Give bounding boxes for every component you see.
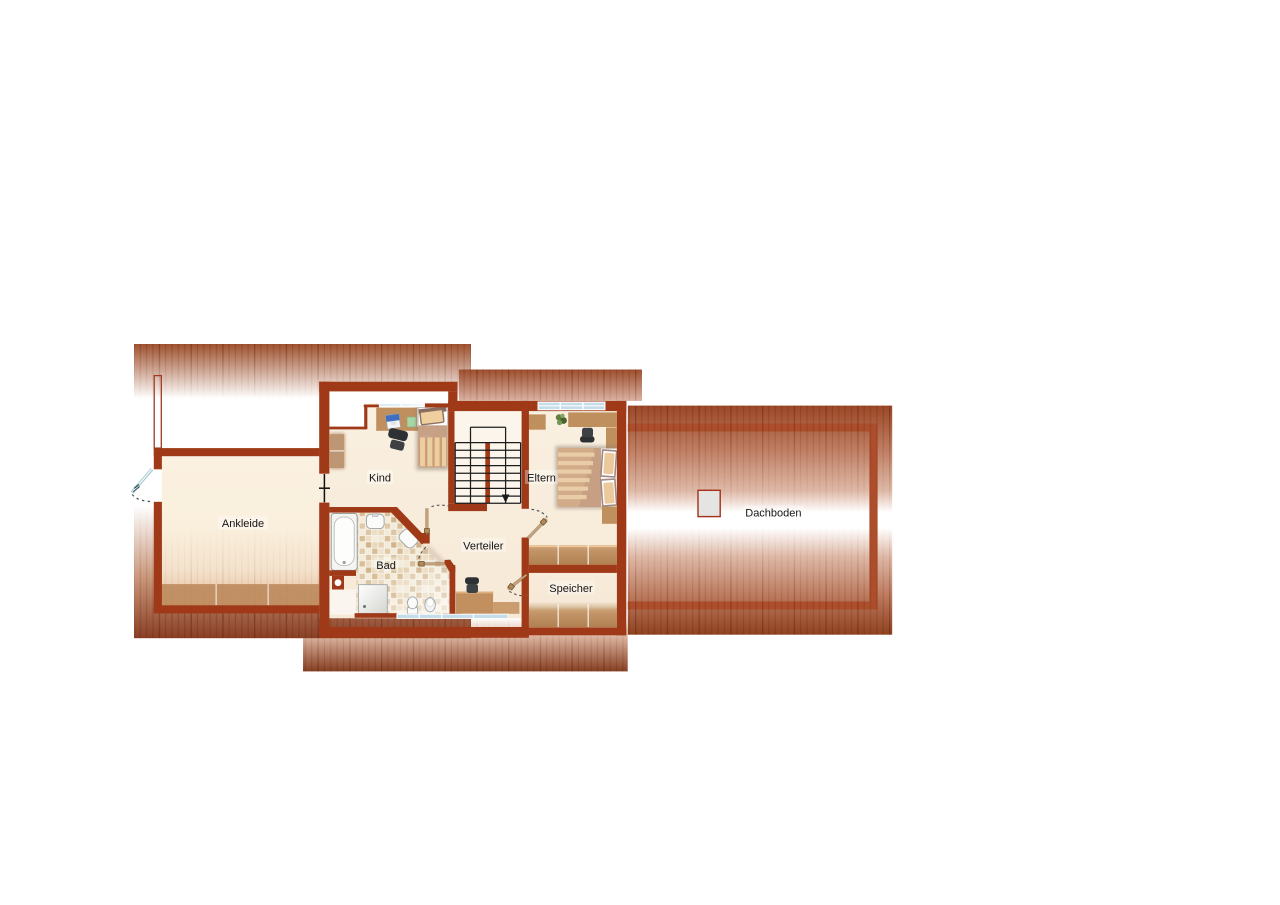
- svg-text:Eltern: Eltern: [527, 473, 556, 485]
- svg-text:Dachboden: Dachboden: [745, 507, 801, 519]
- svg-text:Ankleide: Ankleide: [222, 518, 264, 530]
- svg-text:Bad: Bad: [376, 560, 396, 572]
- svg-text:Verteiler: Verteiler: [463, 541, 504, 553]
- svg-text:Speicher: Speicher: [549, 583, 593, 595]
- svg-text:Kind: Kind: [369, 473, 391, 485]
